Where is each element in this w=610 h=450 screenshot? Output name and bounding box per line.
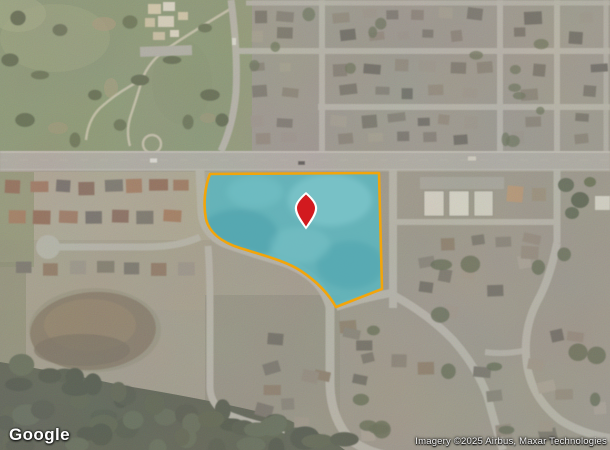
map-container[interactable]: Google Imagery ©2025 Airbus, Maxar Techn… <box>0 0 610 450</box>
attribution-text: Imagery ©2025 Airbus, Maxar Technologies <box>415 436 607 447</box>
satellite-map[interactable] <box>0 0 610 450</box>
google-logo[interactable]: Google <box>9 425 70 445</box>
